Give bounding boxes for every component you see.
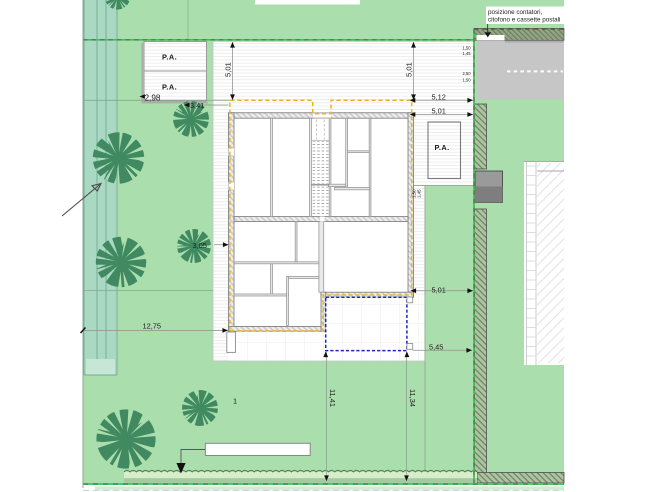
svg-text:5,01: 5,01 xyxy=(432,286,446,295)
svg-text:1,45: 1,45 xyxy=(417,189,422,198)
svg-text:posizione contatori,: posizione contatori, xyxy=(488,9,543,16)
svg-text:P.A.: P.A. xyxy=(162,53,177,62)
svg-text:5,12: 5,12 xyxy=(432,92,446,101)
svg-text:5,01: 5,01 xyxy=(405,62,414,77)
svg-text:11,41: 11,41 xyxy=(328,389,337,407)
svg-text:1,45: 1,45 xyxy=(462,51,471,56)
svg-text:P.A.: P.A. xyxy=(162,83,177,92)
svg-text:2,98: 2,98 xyxy=(145,93,161,102)
svg-text:1: 1 xyxy=(233,397,237,406)
svg-text:5,01: 5,01 xyxy=(432,106,446,115)
svg-text:5,01: 5,01 xyxy=(224,62,233,77)
svg-text:1,50: 1,50 xyxy=(462,78,471,83)
svg-text:citofono e cassette postali: citofono e cassette postali xyxy=(488,17,560,24)
svg-text:5,45: 5,45 xyxy=(429,342,443,351)
svg-text:P.A.: P.A. xyxy=(435,143,450,152)
svg-text:2,50: 2,50 xyxy=(462,71,471,76)
svg-text:11,34: 11,34 xyxy=(408,389,417,407)
svg-text:12,75: 12,75 xyxy=(143,322,162,331)
svg-text:1,50: 1,50 xyxy=(462,46,471,51)
svg-text:3,05: 3,05 xyxy=(193,241,207,250)
svg-text:3,41: 3,41 xyxy=(190,101,204,110)
